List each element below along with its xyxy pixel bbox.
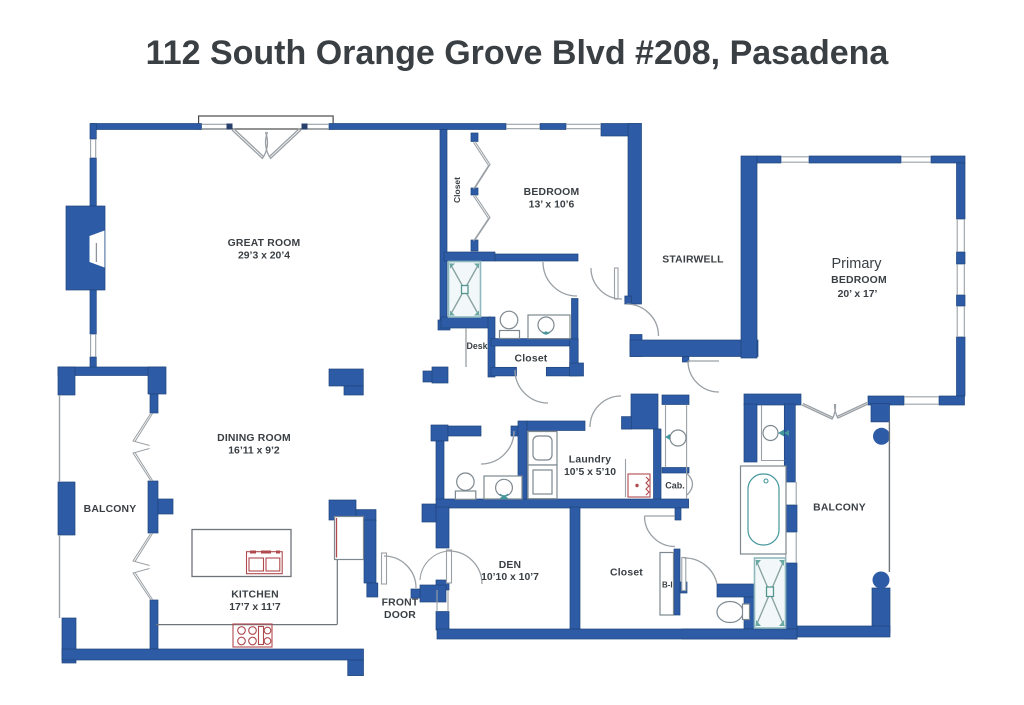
svg-text:Cab.: Cab.: [665, 481, 685, 491]
svg-text:BALCONY: BALCONY: [813, 503, 866, 514]
svg-text:BEDROOM: BEDROOM: [524, 187, 580, 198]
svg-text:BALCONY: BALCONY: [84, 504, 137, 515]
svg-text:112 South Orange Grove Blvd #2: 112 South Orange Grove Blvd #208, Pasade…: [146, 34, 890, 72]
svg-text:20’ x 17’: 20’ x 17’: [838, 289, 878, 300]
svg-text:Laundry: Laundry: [569, 455, 611, 466]
svg-text:FRONT: FRONT: [382, 598, 419, 609]
svg-text:Closet: Closet: [452, 177, 462, 203]
svg-text:10’5 x 5’10: 10’5 x 5’10: [564, 467, 616, 478]
svg-text:16’11 x 9’2: 16’11 x 9’2: [228, 446, 280, 457]
svg-text:KITCHEN: KITCHEN: [231, 590, 279, 601]
svg-text:Closet: Closet: [610, 568, 643, 579]
svg-text:Primary: Primary: [832, 256, 883, 272]
svg-text:17’7 x 11’7: 17’7 x 11’7: [229, 602, 281, 613]
svg-text:29’3 x 20’4: 29’3 x 20’4: [238, 251, 290, 262]
svg-text:B-I: B-I: [662, 581, 673, 590]
svg-text:STAIRWELL: STAIRWELL: [662, 255, 724, 266]
svg-text:DOOR: DOOR: [384, 610, 416, 621]
svg-text:GREAT ROOM: GREAT ROOM: [228, 238, 301, 249]
svg-text:BEDROOM: BEDROOM: [831, 275, 887, 286]
svg-text:DEN: DEN: [499, 560, 522, 571]
svg-text:10’10 x 10’7: 10’10 x 10’7: [481, 572, 539, 583]
svg-text:Desk: Desk: [466, 341, 487, 351]
svg-text:DINING ROOM: DINING ROOM: [217, 433, 291, 444]
svg-text:13’ x 10’6: 13’ x 10’6: [529, 200, 575, 211]
svg-text:Closet: Closet: [515, 354, 548, 365]
